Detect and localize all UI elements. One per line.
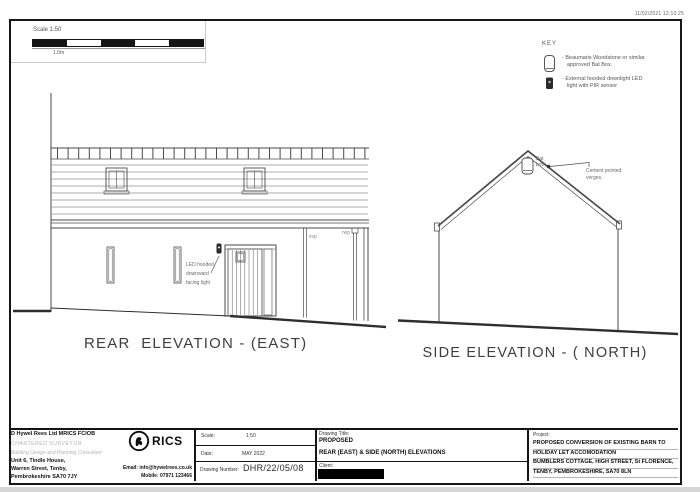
title-block-border	[315, 461, 528, 462]
verge-leader-line	[547, 163, 589, 169]
drawing-title-line: REAR (EAST) & SIDE (NORTH) ELEVATIONS	[319, 450, 445, 456]
title-block-border	[194, 461, 316, 462]
company-email: Email: info@hywelrees.co.uk	[98, 465, 192, 473]
company-role: CHARTERED SURVEYOR	[11, 441, 82, 447]
wall-corner	[364, 228, 368, 321]
company-address-line: Warren Street, Tenby,	[11, 466, 67, 472]
project-line: PROPOSED CONVERSION OF EXISTING BARN TO	[533, 440, 678, 450]
rics-logo-text: RICS	[152, 434, 183, 448]
led-note-line: downward	[186, 270, 214, 279]
verges-note: Cement pointed verges.	[586, 168, 621, 182]
rics-logo: RICS	[128, 429, 183, 453]
title-block-border	[315, 428, 317, 481]
company-tagline: Building Design and Planning Consultant	[11, 450, 102, 456]
led-light-note: LED hooded downward facing light	[186, 261, 214, 288]
rear-elevation-drawing	[13, 93, 386, 327]
kneeler-stone	[435, 223, 440, 231]
rwp-pipe-label: rwp	[342, 230, 350, 236]
led-note-line: facing light	[186, 279, 214, 288]
side-elevation-title: SIDE ELEVATION - ( NORTH)	[418, 345, 652, 361]
drawing-number-value: DHR/22/05/08	[243, 463, 304, 473]
title-block-border	[527, 428, 529, 481]
date-field-label: Date:	[201, 451, 213, 457]
scale-field-value: 1:50	[246, 433, 256, 439]
door-side-panel	[264, 249, 272, 315]
elevation-linework	[0, 0, 700, 492]
rics-lion-icon	[128, 429, 150, 453]
company-address-line: Pembrokeshire SA70 7JY	[11, 474, 77, 480]
date-field-value: MAY 2022	[242, 451, 265, 457]
rear-elevation-title: REAR ELEVATION - (EAST)	[84, 335, 299, 352]
bat-box	[522, 158, 533, 174]
drawing-title-label: Drawing Title:	[319, 431, 349, 437]
svp-pipe-label: svp	[309, 234, 317, 240]
bat-box-label: Bat box	[536, 157, 544, 168]
company-mobile: Mobile: 07971 123466	[98, 473, 192, 481]
client-redaction-bar	[318, 469, 384, 479]
rwp-pipe	[352, 228, 358, 321]
scale-field-label: Scale:	[201, 433, 215, 439]
company-contact: Email: info@hywelrees.co.uk Mobile: 0797…	[98, 465, 192, 480]
title-block-border	[194, 445, 316, 446]
side-elevation-drawing	[398, 151, 678, 334]
bat-box-label-line: box	[536, 163, 544, 169]
verges-note-line: Cement pointed	[586, 168, 621, 175]
company-address-line: Unit 6, Tindle House,	[11, 458, 65, 464]
ground-line	[13, 308, 386, 327]
title-block-border	[9, 428, 678, 430]
entrance-door	[225, 245, 276, 316]
slot-window	[174, 247, 181, 283]
project-line: BUMBLERS COTTAGE, HIGH STREET, St FLOREN…	[533, 459, 678, 469]
sheet-edge-shadow	[0, 487, 700, 492]
title-block-border	[194, 428, 196, 481]
svp-pipe	[304, 228, 307, 318]
project-line: TENBY, PEMBROKESHIRE, SA70 8LN	[533, 469, 678, 479]
drawing-number-label: Drawing Number:	[200, 467, 239, 473]
project-field-label: Project:	[533, 432, 550, 438]
slot-window	[107, 247, 114, 283]
ground-line	[398, 321, 678, 335]
drawing-title-line: PROPOSED	[319, 438, 353, 444]
led-note-line: LED hooded	[186, 261, 214, 270]
verges-note-line: verges.	[586, 175, 621, 182]
project-line: HOLIDAY LET ACCOMODATION	[533, 450, 678, 460]
company-name: D Hywel Rees Ltd MRICS FCIOB	[11, 431, 95, 437]
